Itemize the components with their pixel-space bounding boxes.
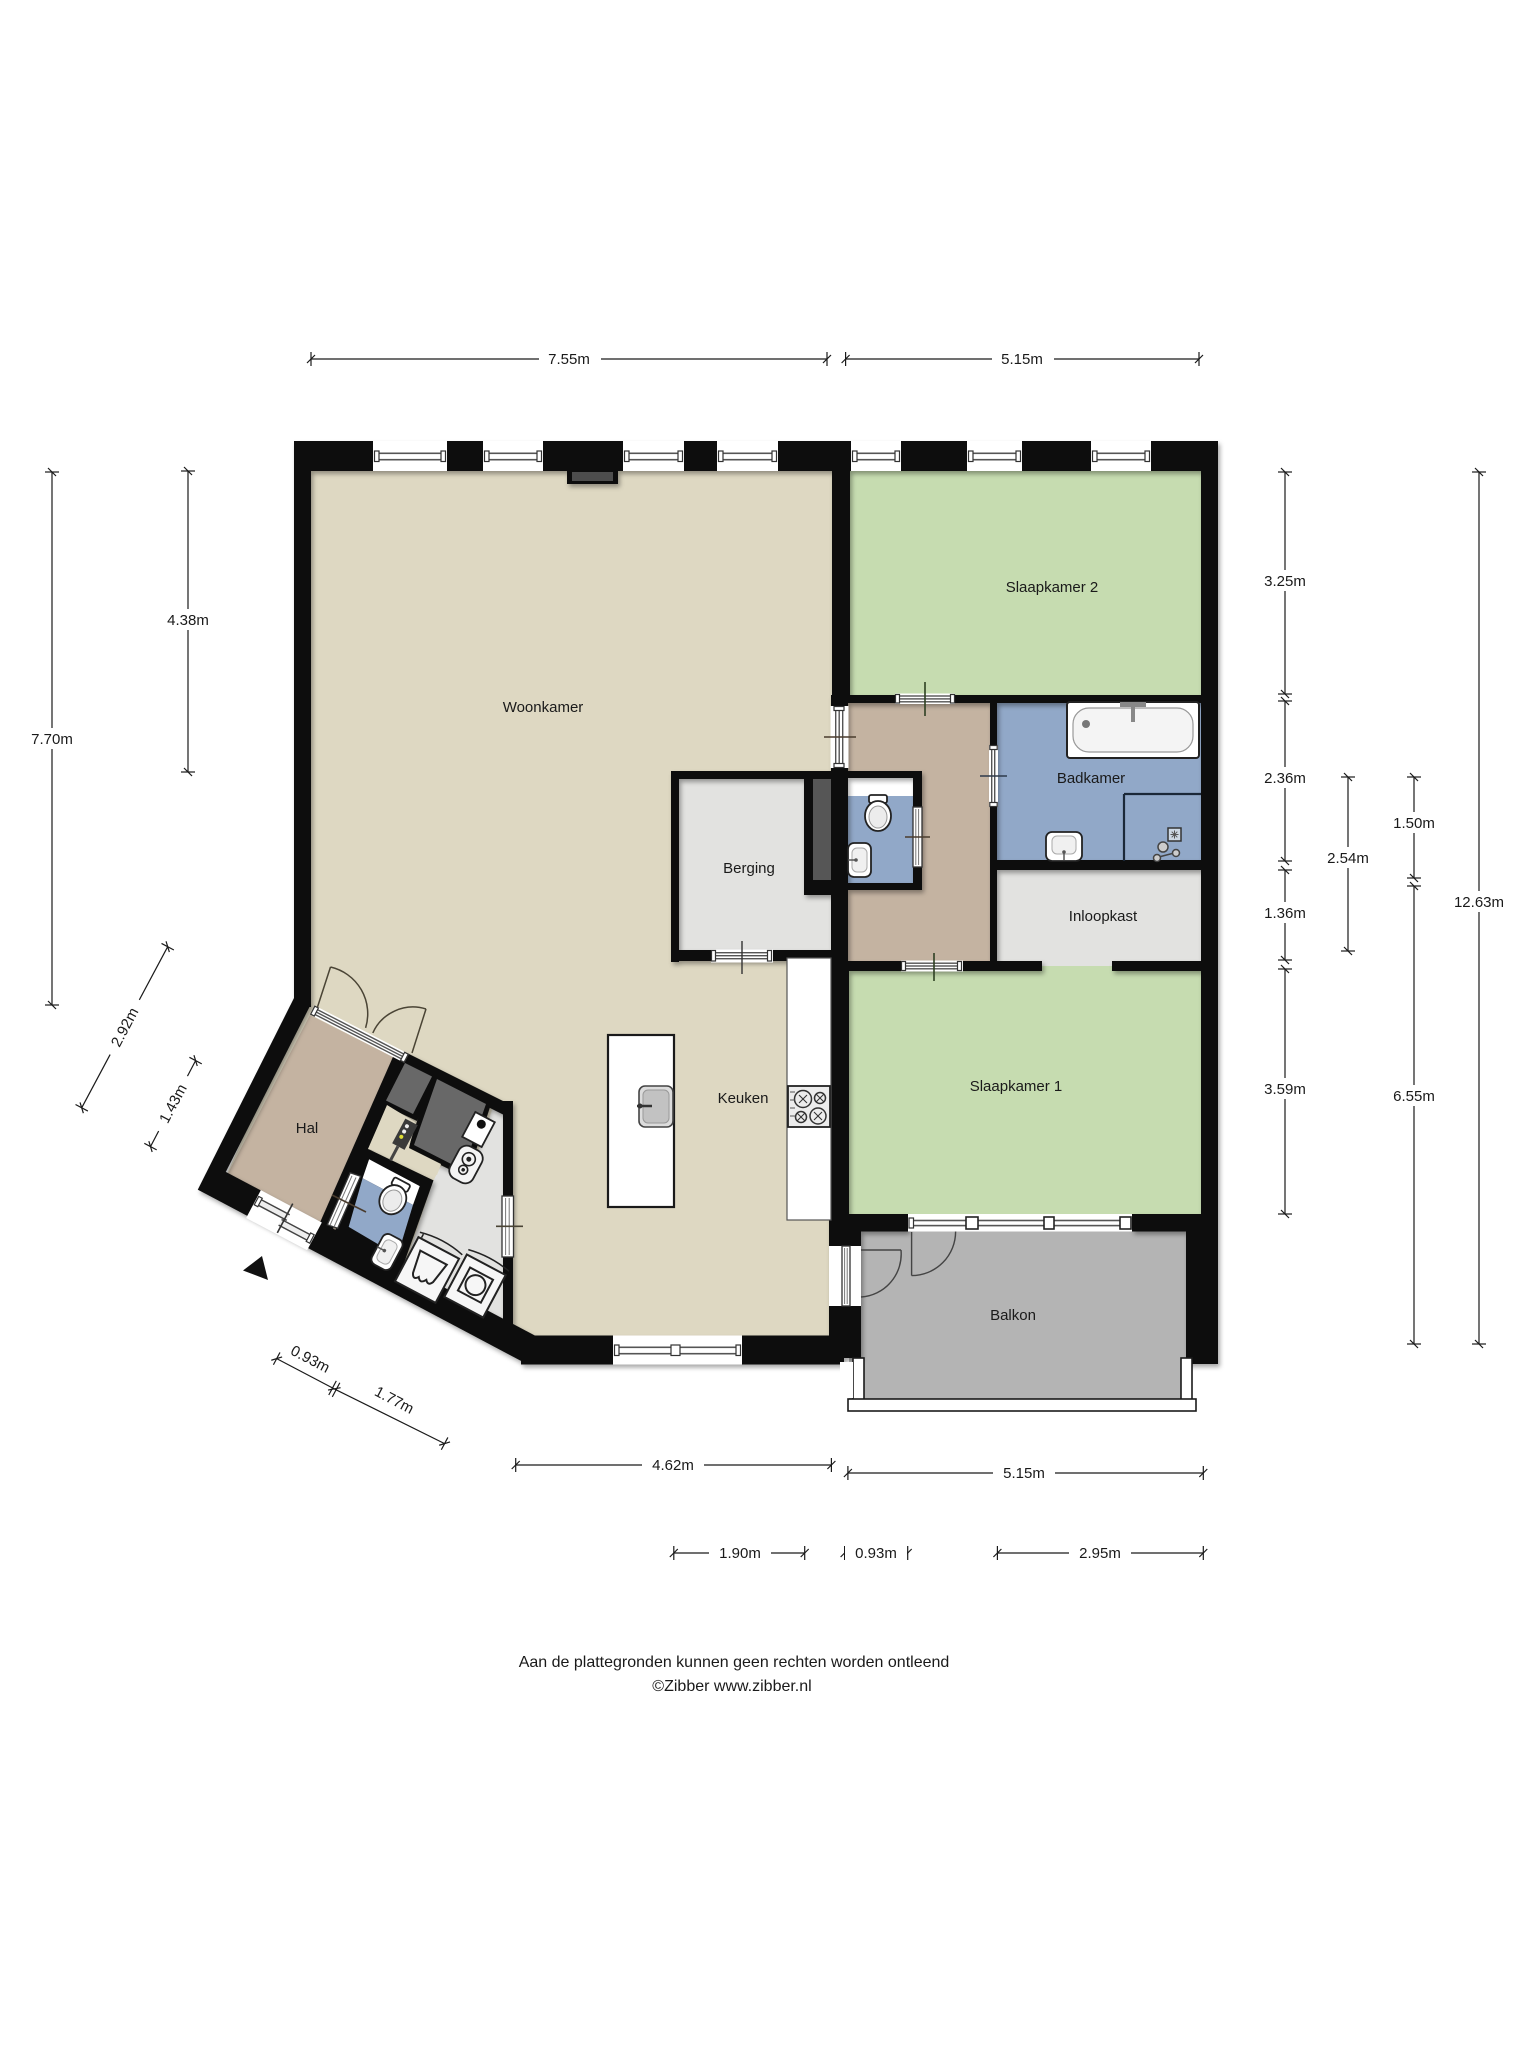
svg-text:4.38m: 4.38m — [167, 612, 209, 629]
svg-text:Keuken: Keuken — [718, 1090, 769, 1107]
svg-text:12.63m: 12.63m — [1454, 894, 1504, 911]
svg-text:4.62m: 4.62m — [652, 1457, 694, 1474]
svg-text:1.50m: 1.50m — [1393, 815, 1435, 832]
svg-text:Woonkamer: Woonkamer — [503, 699, 584, 716]
svg-text:7.70m: 7.70m — [31, 731, 73, 748]
svg-text:0.93m: 0.93m — [855, 1545, 897, 1562]
svg-text:5.15m: 5.15m — [1001, 351, 1043, 368]
svg-text:Slaapkamer 2: Slaapkamer 2 — [1006, 579, 1099, 596]
svg-text:2.36m: 2.36m — [1264, 770, 1306, 787]
svg-text:2.54m: 2.54m — [1327, 850, 1369, 867]
svg-text:1.36m: 1.36m — [1264, 905, 1306, 922]
svg-text:3.25m: 3.25m — [1264, 573, 1306, 590]
svg-text:2.95m: 2.95m — [1079, 1545, 1121, 1562]
svg-text:Berging: Berging — [723, 860, 775, 877]
svg-text:7.55m: 7.55m — [548, 351, 590, 368]
svg-text:Inloopkast: Inloopkast — [1069, 908, 1138, 925]
svg-text:1.90m: 1.90m — [719, 1545, 761, 1562]
svg-text:Hal: Hal — [296, 1120, 319, 1137]
svg-text:Slaapkamer 1: Slaapkamer 1 — [970, 1078, 1063, 1095]
svg-text:6.55m: 6.55m — [1393, 1088, 1435, 1105]
svg-text:3.59m: 3.59m — [1264, 1081, 1306, 1098]
svg-text:Badkamer: Badkamer — [1057, 770, 1125, 787]
svg-text:Balkon: Balkon — [990, 1307, 1036, 1324]
svg-text:Aan de plattegronden kunnen ge: Aan de plattegronden kunnen geen rechten… — [519, 1654, 950, 1671]
svg-text:5.15m: 5.15m — [1003, 1465, 1045, 1482]
svg-text:©Zibber www.zibber.nl: ©Zibber www.zibber.nl — [652, 1678, 811, 1695]
